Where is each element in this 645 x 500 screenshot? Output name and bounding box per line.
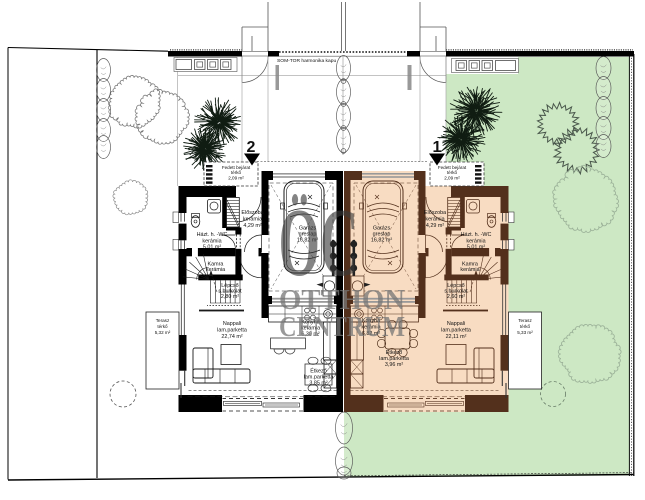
svg-text:22,11 m²: 22,11 m² — [446, 334, 467, 340]
svg-text:5,33 m²: 5,33 m² — [517, 330, 533, 335]
svg-text:2: 2 — [247, 139, 256, 156]
svg-text:Nappali: Nappali — [223, 321, 241, 327]
svg-text:CENTRUM: CENTRUM — [279, 312, 405, 343]
svg-text:ÖC: ÖC — [279, 189, 359, 296]
svg-text:Étkező: Étkező — [386, 349, 402, 356]
svg-text:4,29 m²: 4,29 m² — [426, 223, 444, 229]
svg-text:Terasz: Terasz — [518, 318, 532, 323]
svg-text:Terasz: Terasz — [156, 318, 170, 323]
svg-text:2,60 m²: 2,60 m² — [447, 294, 465, 300]
svg-text:5,01 m²: 5,01 m² — [203, 245, 221, 251]
svg-text:térkő: térkő — [157, 324, 168, 329]
svg-text:SOM-TOR harmonika kapu: SOM-TOR harmonika kapu — [277, 58, 336, 64]
svg-text:kerámia: kerámia — [425, 217, 444, 223]
svg-text:22,74 m²: 22,74 m² — [221, 334, 242, 340]
svg-text:lam.parketta: lam.parketta — [217, 328, 247, 334]
svg-text:kerámia: kerámia — [206, 267, 225, 273]
svg-text:térkő: térkő — [520, 324, 531, 329]
svg-text:3,85 m²: 3,85 m² — [309, 381, 327, 387]
svg-text:1: 1 — [433, 139, 442, 156]
svg-text:Előszoba: Előszoba — [241, 210, 263, 216]
svg-text:lam.parketta: lam.parketta — [441, 328, 471, 334]
svg-text:2,09 m²: 2,09 m² — [228, 175, 244, 180]
svg-text:2,09 m²: 2,09 m² — [444, 175, 460, 180]
svg-text:5,32 m²: 5,32 m² — [155, 330, 171, 335]
svg-text:Étkező: Étkező — [310, 368, 326, 375]
svg-text:kerámia: kerámia — [243, 217, 262, 223]
svg-text:4,29 m²: 4,29 m² — [243, 223, 261, 229]
svg-text:Nappali: Nappali — [447, 321, 465, 327]
svg-text:16,82 m²: 16,82 m² — [371, 238, 392, 244]
svg-text:5,01 m²: 5,01 m² — [467, 245, 485, 251]
svg-text:Előszoba: Előszoba — [424, 210, 446, 216]
svg-text:Házt. h. -WC: Házt. h. -WC — [461, 232, 492, 238]
svg-text:2,80 m²: 2,80 m² — [221, 294, 239, 300]
svg-text:Házt. h. -WC: Házt. h. -WC — [197, 232, 228, 238]
svg-text:kerámia: kerámia — [460, 267, 479, 273]
svg-text:3,96 m²: 3,96 m² — [385, 362, 403, 368]
